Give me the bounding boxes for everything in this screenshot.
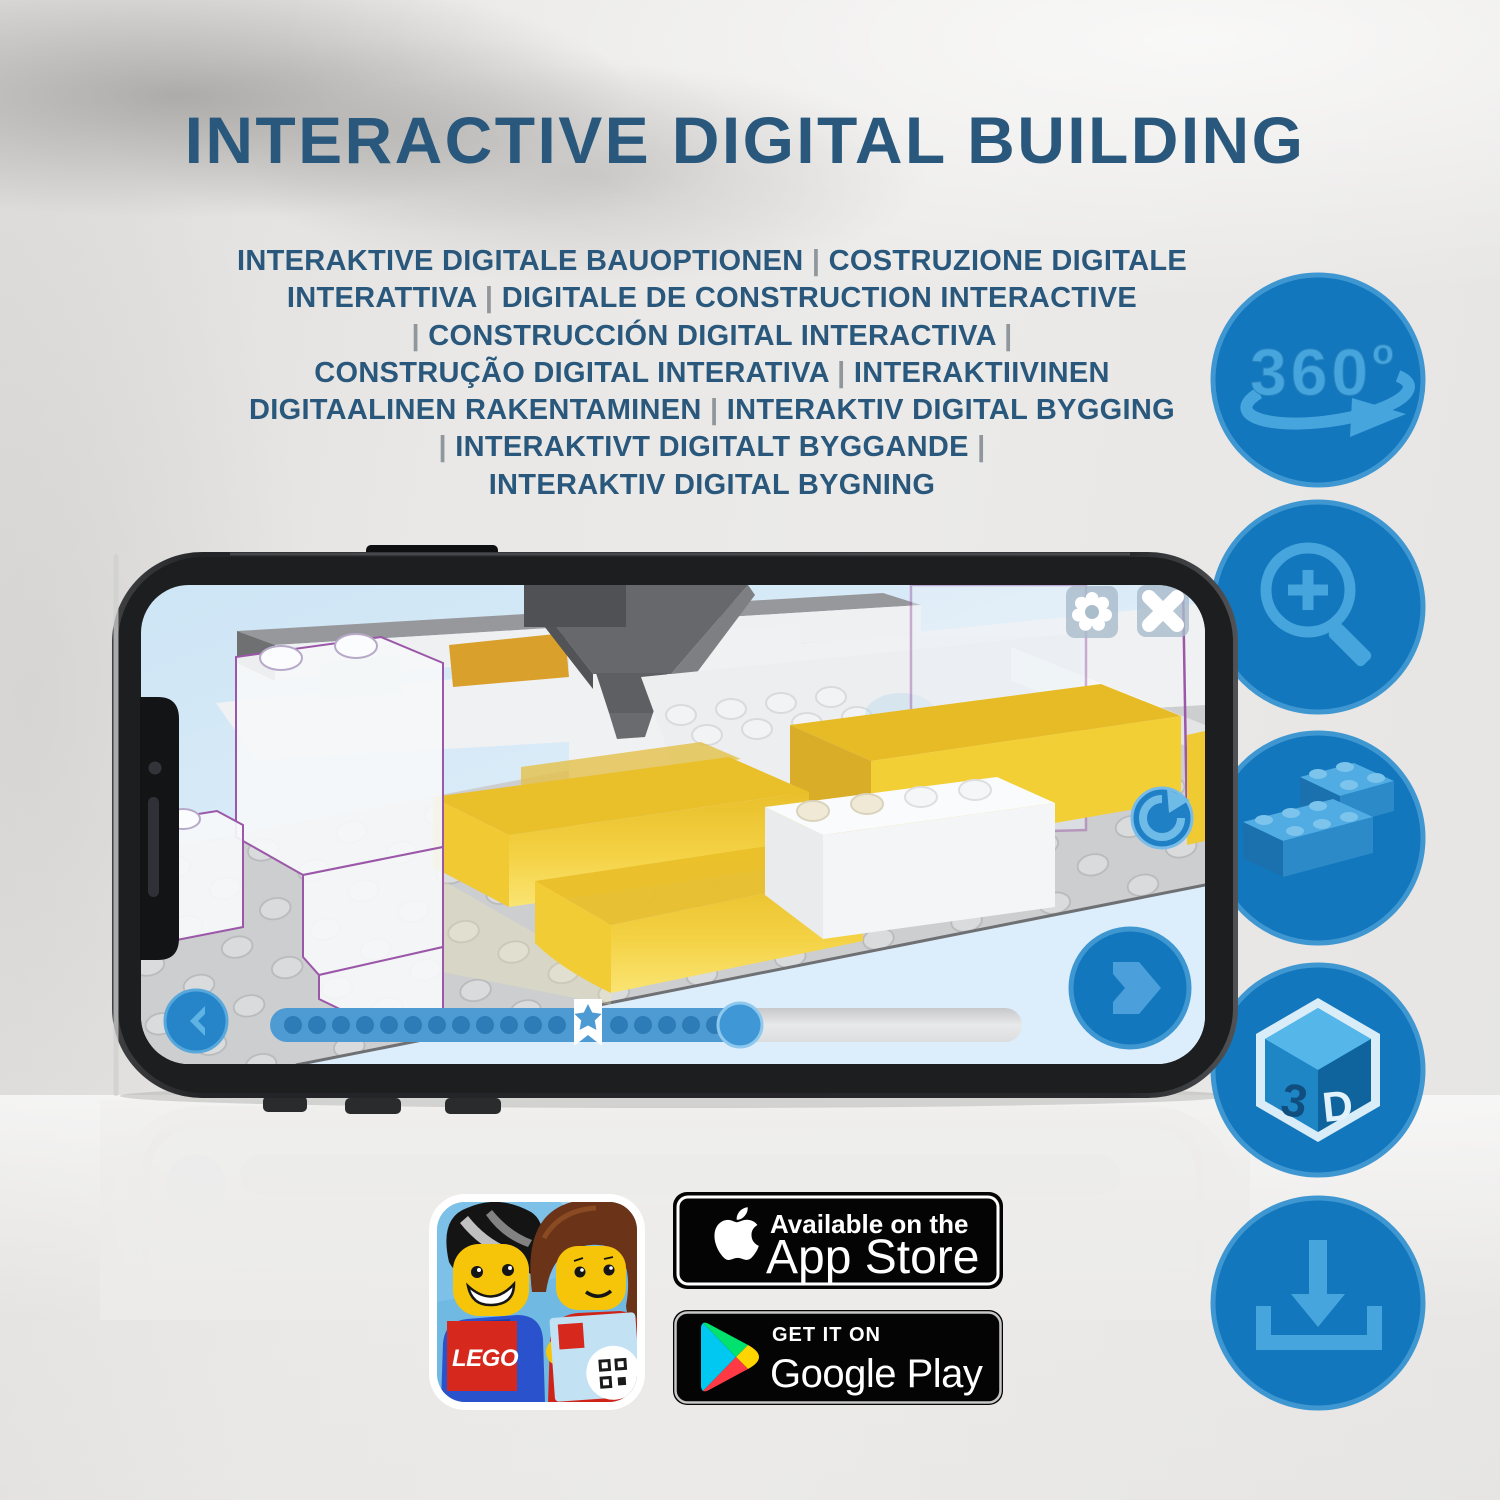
svg-text:360: 360: [1250, 335, 1372, 409]
svg-text:D: D: [1320, 1081, 1355, 1131]
svg-text:Google Play: Google Play: [770, 1352, 983, 1396]
svg-text:LEGO: LEGO: [452, 1345, 519, 1372]
svg-text:App Store: App Store: [766, 1231, 979, 1284]
svg-text:o: o: [1372, 331, 1394, 372]
svg-text:GET IT ON: GET IT ON: [772, 1324, 881, 1346]
